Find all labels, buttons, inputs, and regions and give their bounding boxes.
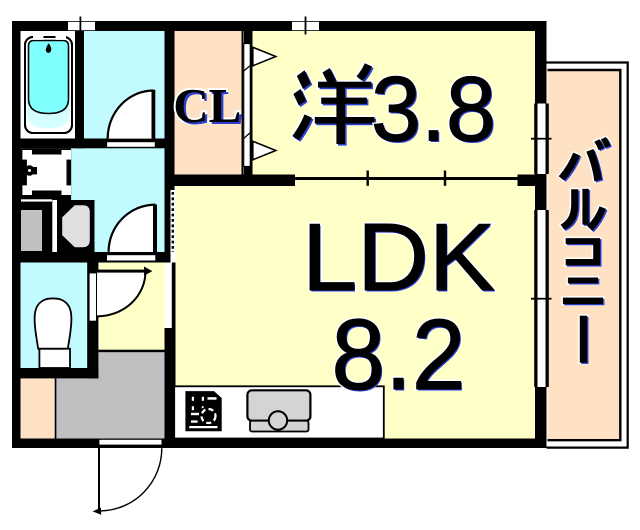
svg-text:3.8: 3.8	[371, 59, 496, 161]
svg-text:8.2: 8.2	[332, 299, 466, 411]
svg-text:CL: CL	[173, 78, 241, 133]
svg-text:LDK: LDK	[302, 204, 495, 311]
